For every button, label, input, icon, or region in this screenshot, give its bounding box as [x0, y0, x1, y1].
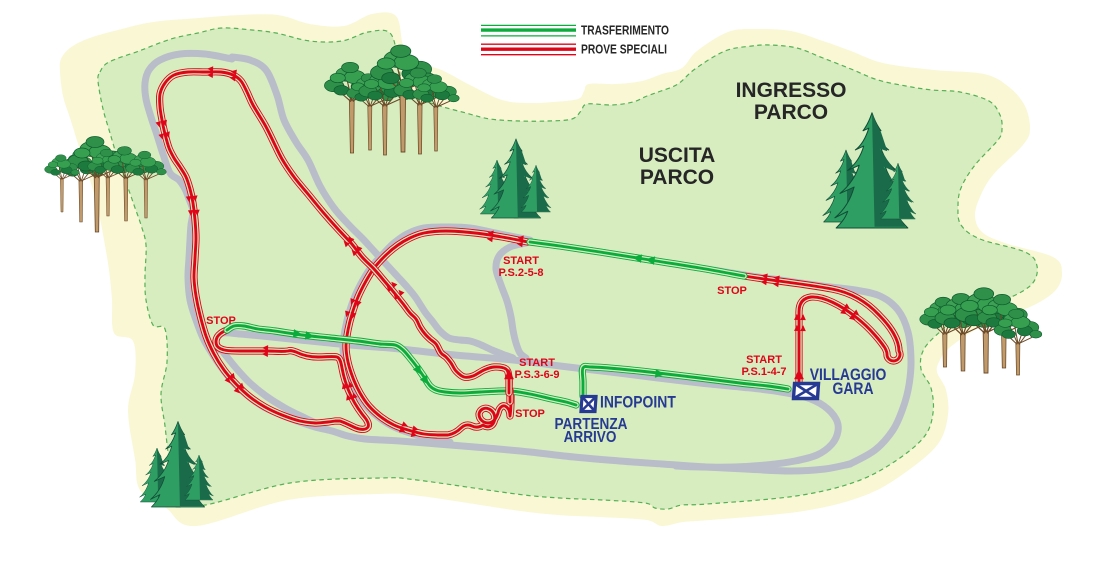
svg-text:PARCO: PARCO [640, 166, 714, 189]
svg-text:P.S.3-6-9: P.S.3-6-9 [514, 369, 559, 381]
svg-text:START: START [746, 354, 782, 366]
svg-text:P.S.1-4-7: P.S.1-4-7 [741, 366, 786, 378]
svg-text:INGRESSO: INGRESSO [736, 79, 847, 102]
svg-text:START: START [519, 357, 555, 369]
svg-text:PARCO: PARCO [754, 101, 828, 124]
svg-text:STOP: STOP [515, 408, 545, 420]
svg-text:GARA: GARA [832, 380, 873, 399]
svg-text:P.S.2-5-8: P.S.2-5-8 [498, 267, 543, 279]
svg-text:START: START [503, 255, 539, 267]
svg-text:INFOPOINT: INFOPOINT [600, 393, 676, 412]
svg-text:TRASFERIMENTO: TRASFERIMENTO [581, 25, 669, 38]
svg-text:PROVE SPECIALI: PROVE SPECIALI [581, 44, 667, 57]
svg-text:STOP: STOP [717, 285, 747, 297]
svg-text:ARRIVO: ARRIVO [564, 429, 617, 446]
svg-text:USCITA: USCITA [639, 144, 716, 167]
svg-text:STOP: STOP [206, 315, 236, 327]
